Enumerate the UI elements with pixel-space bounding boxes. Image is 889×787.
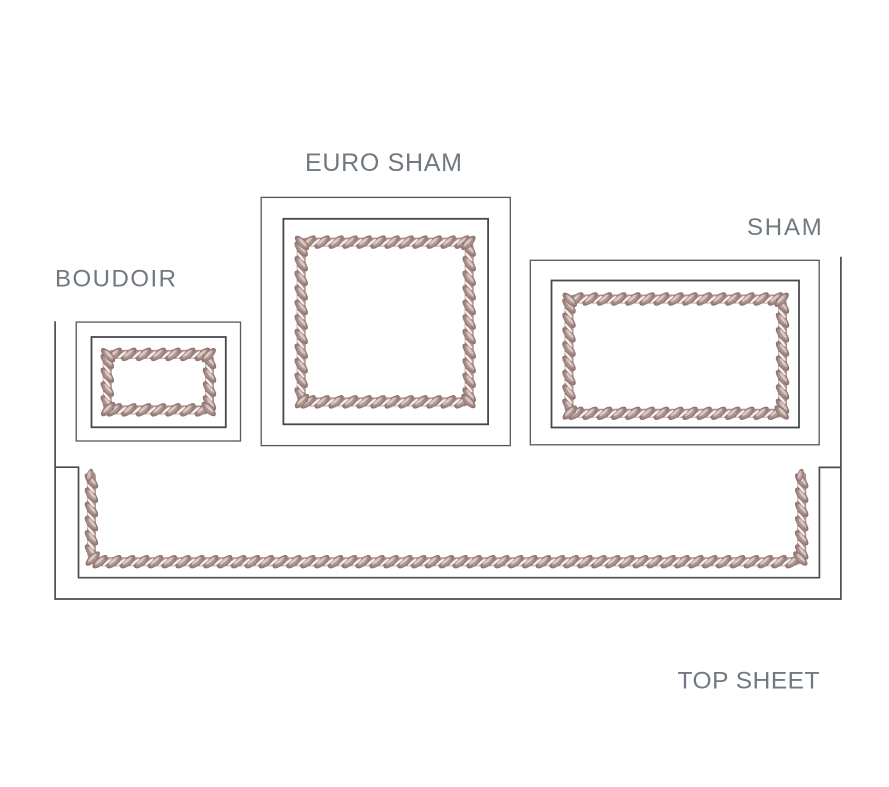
svg-text:BOUDOIR: BOUDOIR: [55, 266, 178, 293]
svg-text:TOP SHEET: TOP SHEET: [678, 668, 820, 695]
svg-text:SHAM: SHAM: [747, 214, 824, 241]
svg-text:EURO SHAM: EURO SHAM: [305, 149, 463, 177]
